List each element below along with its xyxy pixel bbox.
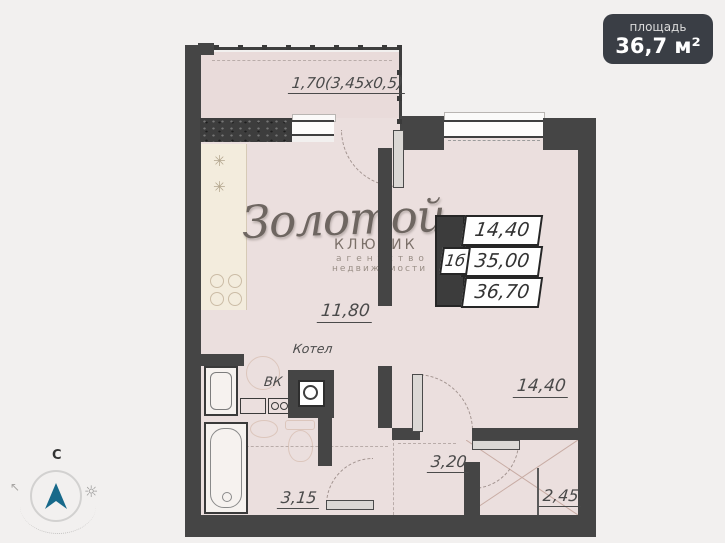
- railing-post: [358, 45, 363, 50]
- axis-line: [398, 443, 456, 444]
- floor-plan-page: ✳ ✳ Золотой КЛЮЧИК агентство недвижимост…: [0, 0, 725, 543]
- railing-post: [214, 45, 219, 50]
- wardrobe-area-text: 2,45: [539, 486, 583, 507]
- area-badge-value: 36,7 м²: [615, 34, 701, 58]
- railing-post: [382, 45, 387, 50]
- railing-post: [310, 45, 315, 50]
- wall-room-divider-lower: [378, 366, 392, 428]
- balcony-dimension-label: 1,70(3,45x0,5): [239, 74, 407, 92]
- railing-post: [262, 45, 267, 50]
- stove-ring-icon: [228, 274, 242, 288]
- ghost-sink-oval: [250, 420, 278, 438]
- ghost-toilet-tank: [285, 420, 315, 430]
- kitchen-window: [292, 120, 334, 136]
- bedroom-window: [444, 120, 543, 138]
- bedroom-area-text: 14,40: [513, 376, 570, 398]
- bedroom-window-axis: [448, 140, 540, 141]
- wardrobe-door-leaf: [472, 440, 520, 450]
- area-badge-label: площадь: [630, 20, 687, 34]
- wall-right: [578, 118, 596, 515]
- burner-icon: ✳: [213, 152, 226, 170]
- hallway-area-text: 3,20: [427, 452, 471, 473]
- wall-corner-block: [400, 116, 444, 150]
- wardrobe-shelf-line: [537, 468, 539, 515]
- balcony-railing-top: [200, 47, 402, 50]
- wall-bathroom-top: [200, 354, 244, 366]
- kitchen-living-area-text: 11,80: [317, 301, 374, 323]
- railing-post: [397, 45, 402, 50]
- area-badge: площадь 36,7 м²: [603, 14, 713, 64]
- wall-bottom: [185, 515, 596, 537]
- compass-north-label: С: [52, 448, 62, 463]
- wall-bathroom-right: [318, 418, 332, 466]
- northwest-arrow-icon: ↖: [10, 480, 20, 494]
- wall-bedroom-top-right: [543, 118, 596, 150]
- unit-table-unit-type: 1б: [439, 247, 471, 275]
- balcony-door-leaf: [393, 130, 404, 188]
- vent-shaft-inner: [298, 380, 325, 407]
- railing-post: [397, 119, 402, 124]
- balcony-dimension-text: 1,70(3,45x0,5): [288, 74, 407, 94]
- kitchen-living-area-label: 11,80: [317, 301, 374, 321]
- railing-post: [286, 45, 291, 50]
- washing-machine: [204, 366, 238, 416]
- bathroom-area-text: 3,15: [277, 488, 321, 509]
- bathroom-door-leaf: [326, 500, 374, 510]
- hallway-area-label: 3,20: [427, 452, 471, 471]
- bedroom-area-label: 14,40: [513, 376, 570, 396]
- wall-bedroom-bottom-b: [472, 428, 578, 440]
- compass: С ☼ ↖: [8, 446, 118, 538]
- boiler-label: Котел: [292, 341, 333, 356]
- railing-post: [334, 45, 339, 50]
- wall-room-divider-upper: [378, 148, 392, 306]
- hob-unit: [268, 398, 290, 414]
- burner-icon: ✳: [213, 178, 226, 196]
- stove-ring-icon: [210, 274, 224, 288]
- sun-path-arc: [20, 478, 96, 534]
- unit-table-value-apartment: 35,00: [461, 246, 543, 277]
- wardrobe-area-label: 2,45: [539, 486, 583, 505]
- axis-line: [393, 438, 394, 515]
- railing-post: [238, 45, 243, 50]
- stove-ring-icon: [228, 292, 242, 306]
- unit-table-value-total: 36,70: [461, 277, 543, 308]
- wall-left: [185, 45, 201, 537]
- balcony-dash-line: [212, 60, 392, 61]
- stove-ring-icon: [210, 292, 224, 306]
- bedroom-door-leaf: [412, 374, 423, 432]
- bathroom-area-label: 3,15: [277, 488, 321, 507]
- wall-balcony-kitchen: [200, 118, 292, 142]
- unit-table-value-living: 14,40: [461, 215, 543, 246]
- railing-post: [397, 96, 402, 101]
- utility-label: ВК: [263, 375, 283, 390]
- counter-unit: [240, 398, 266, 414]
- bathtub: [204, 422, 248, 514]
- wall-left-cap: [198, 43, 214, 55]
